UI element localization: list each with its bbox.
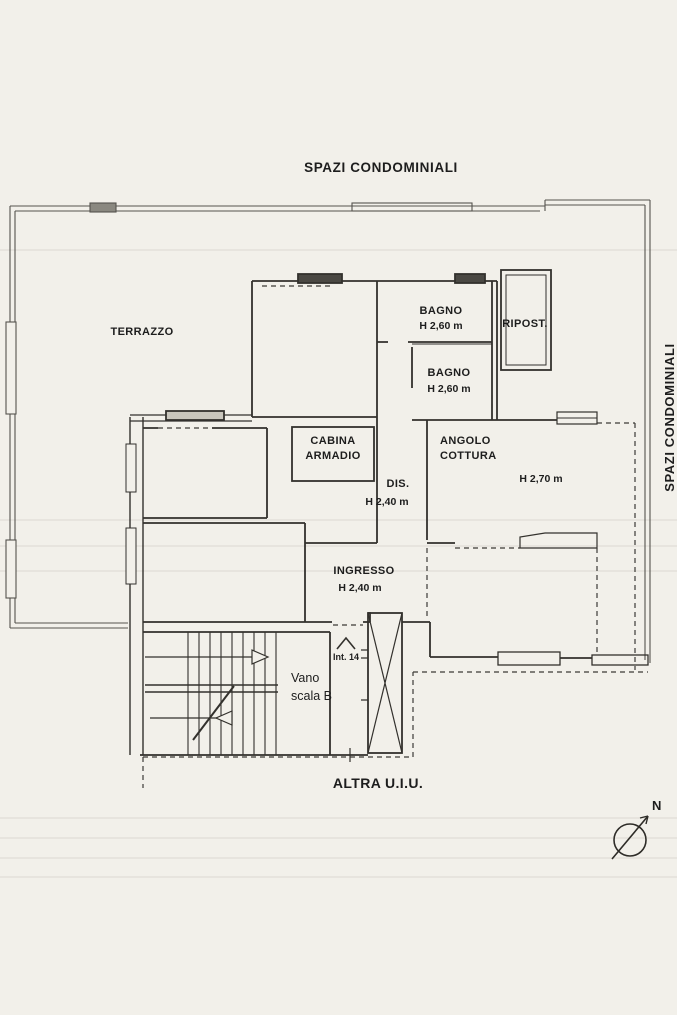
label-interno-14: Int. 14	[333, 651, 359, 663]
room-label-bagno-2: BAGNO	[428, 366, 471, 381]
room-label-cottura: COTTURA	[440, 449, 497, 464]
label-scala-b: scala B	[291, 688, 332, 705]
height-label-bagno-1: H 2,60 m	[419, 319, 462, 333]
label-north: N	[652, 797, 661, 815]
room-label-angolo: ANGOLO	[440, 434, 491, 449]
room-label-ripostiglio: RIPOST.	[502, 317, 548, 332]
room-label-terrazzo: TERRAZZO	[110, 325, 173, 340]
room-label-disimpegno: DIS.	[387, 477, 410, 492]
room-label-armadio: ARMADIO	[305, 449, 360, 464]
height-label-bagno-2: H 2,60 m	[427, 382, 470, 396]
label-altra-uiu: ALTRA U.I.U.	[333, 774, 423, 793]
room-label-cabina: CABINA	[310, 434, 355, 449]
label-spazi-condominiali-right: SPAZI CONDOMINIALI	[661, 352, 677, 492]
height-label-ingresso: H 2,40 m	[338, 581, 381, 595]
room-label-ingresso: INGRESSO	[333, 564, 394, 579]
title-spazi-condominiali-top: SPAZI CONDOMINIALI	[304, 159, 458, 177]
height-label-disimpegno: H 2,40 m	[365, 495, 408, 509]
label-vano: Vano	[291, 670, 319, 687]
room-label-bagno-1: BAGNO	[420, 304, 463, 319]
height-label-soggiorno: H 2,70 m	[519, 472, 562, 486]
floor-plan-page: SPAZI CONDOMINIALI SPAZI CONDOMINIALI TE…	[0, 0, 677, 1015]
floor-plan-drawing	[0, 0, 677, 1015]
